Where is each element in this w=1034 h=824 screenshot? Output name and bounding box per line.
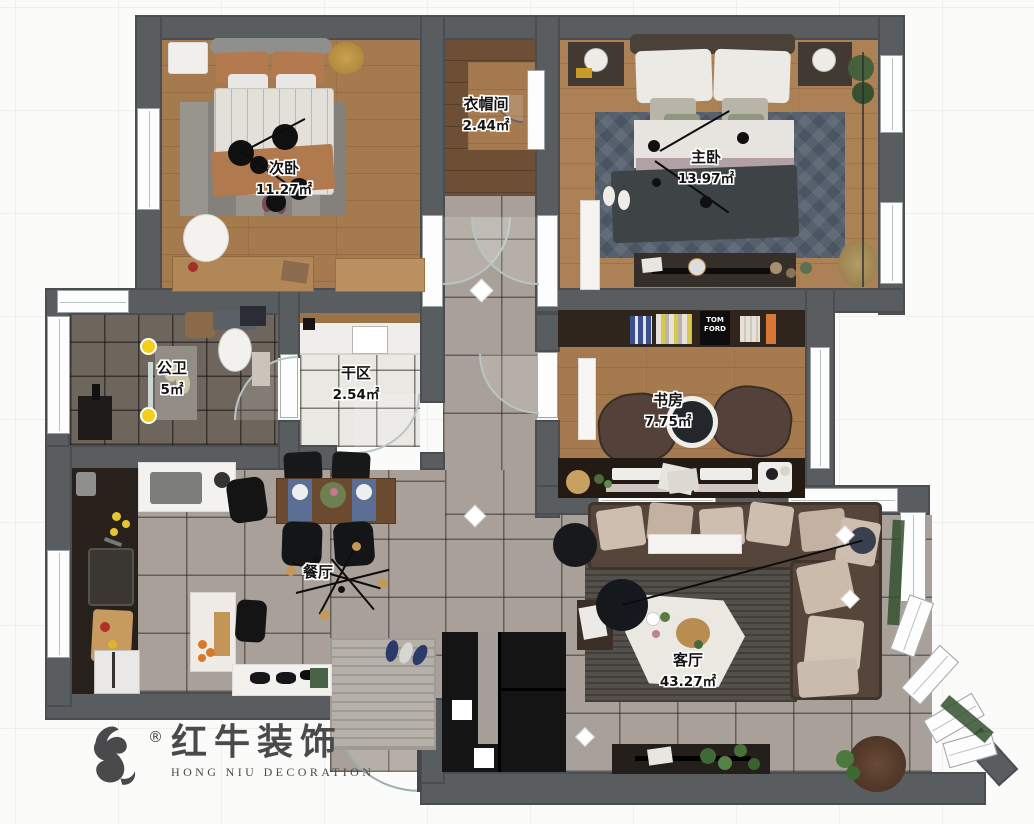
study-door-panel	[578, 358, 596, 440]
books-blue	[630, 316, 652, 344]
cabinet-divider-v	[498, 632, 501, 772]
bull-icon	[88, 722, 142, 792]
dry-wood-band	[300, 313, 420, 323]
room-area: 11.27㎡	[229, 180, 339, 202]
desk-plant-1	[594, 474, 604, 484]
brand-logo: ® 红牛装饰 HONG NIU DECORATION	[88, 722, 374, 792]
bench-shoe-1	[250, 672, 270, 684]
plant-master-1	[848, 55, 874, 81]
dresser-secondary	[335, 258, 425, 292]
plate-1	[292, 484, 308, 500]
table-plant-1	[660, 612, 670, 622]
island-board	[214, 612, 230, 656]
lemon-2	[122, 520, 130, 528]
deco-ball-2	[786, 268, 796, 278]
cabinet-gap-tile	[478, 632, 498, 744]
label-living: 客厅 43.27㎡	[633, 648, 743, 694]
table-flower-pink	[652, 630, 660, 638]
room-area: 2.44㎡	[431, 116, 541, 138]
orange-1	[198, 640, 207, 649]
logo-chinese: 红牛装饰	[171, 722, 374, 763]
book-orange	[766, 314, 776, 344]
lamp-right	[812, 48, 836, 72]
chandelier-knob	[378, 578, 388, 588]
curtain-rail	[862, 52, 864, 287]
room-name: 衣帽间	[431, 92, 541, 116]
chandelier-dot	[338, 586, 345, 593]
book-box-tomford: TOM FORD	[700, 311, 730, 345]
deco-ball-3	[800, 262, 812, 274]
tomato	[100, 622, 110, 632]
spotlight-yellow-1	[140, 338, 157, 355]
cabinet-handle-2	[474, 748, 494, 768]
desk-flower	[188, 262, 198, 272]
sputnik-dot	[700, 196, 712, 208]
desk-board	[281, 260, 310, 283]
room-area: 43.27㎡	[633, 672, 743, 694]
tv-papers	[647, 746, 673, 765]
living-plant-3	[734, 744, 747, 757]
window-master-2	[880, 202, 903, 284]
sofa-pillow	[797, 658, 859, 698]
orange-3	[198, 654, 206, 662]
door-leaf-study	[537, 352, 558, 418]
window-secondary-bedroom	[137, 108, 160, 210]
lemon-1	[112, 512, 121, 521]
sofa-pillow	[745, 501, 794, 547]
room-name: 餐厅	[263, 560, 373, 584]
wall-dry-right-b	[420, 452, 445, 470]
books-mixed	[656, 314, 692, 344]
lemon-3	[110, 528, 118, 536]
wall-study-left-a	[535, 313, 560, 352]
wall-kitchen-bottom	[45, 692, 337, 720]
floor-plan: TOM FORD	[0, 0, 1034, 824]
dried-grass	[838, 240, 878, 288]
room-name: 书房	[613, 388, 723, 412]
window-bathroom-left	[47, 316, 70, 434]
chandelier-knob	[320, 610, 330, 620]
label-secondary-bedroom: 次卧 11.27㎡	[229, 156, 339, 202]
wall-bath-dry-divider-a	[278, 288, 300, 358]
dry-soap	[303, 318, 315, 330]
window-bathroom-top	[57, 290, 129, 313]
mirror-strip	[580, 200, 600, 290]
fridge	[94, 650, 140, 694]
label-cloakroom: 衣帽间 2.44㎡	[431, 92, 541, 138]
label-dry-area: 干区 2.54㎡	[301, 361, 411, 407]
stool-black	[235, 599, 268, 643]
sputnik-dot	[737, 132, 749, 144]
door-leaf-secondary-bedroom	[422, 215, 443, 307]
sofa-pillow	[595, 505, 646, 551]
slippers-master-2	[618, 190, 630, 210]
room-area: 7.75㎡	[613, 412, 723, 434]
plate-2	[356, 484, 372, 500]
cabinet-divider-h	[501, 688, 566, 691]
cabinet-papers	[641, 257, 662, 273]
fridge-handle	[112, 652, 115, 688]
shower-column	[92, 384, 100, 400]
room-name: 公卫	[117, 356, 227, 380]
label-master-bedroom: 主卧 13.97㎡	[651, 145, 761, 191]
living-plant-4	[748, 758, 760, 770]
spotlight-yellow-2	[140, 407, 157, 424]
nightstand-white	[168, 42, 208, 74]
bath-fixture	[240, 306, 266, 326]
table-deco-tan	[676, 618, 710, 648]
window-master-1	[880, 55, 903, 133]
label-bathroom: 公卫 5㎡	[117, 356, 227, 402]
label-dining: 餐厅	[263, 560, 373, 584]
sofa-console-white	[648, 534, 742, 554]
bench-plant-box	[310, 668, 328, 688]
stove	[150, 472, 202, 504]
tray-cup	[780, 466, 790, 476]
label-study: 书房 7.75㎡	[613, 388, 723, 434]
shower-pan	[78, 396, 112, 440]
towel	[252, 352, 270, 386]
bench-shoe-2	[276, 672, 296, 684]
bath-stool	[185, 312, 215, 338]
floor-corridor-mouth	[445, 470, 535, 515]
pillow-master-2	[713, 49, 791, 104]
keyboard-1	[612, 468, 664, 480]
desk-globe	[566, 470, 590, 494]
cabinet-handle-1	[452, 700, 472, 720]
desk-papers-2	[667, 468, 700, 494]
living-plant-1	[700, 748, 716, 764]
kitchen-kettle	[76, 472, 96, 496]
room-name: 干区	[301, 361, 411, 385]
desk-chair	[183, 214, 229, 262]
keyboard-2	[700, 468, 752, 480]
slippers-master-1	[603, 186, 615, 206]
books-white	[740, 316, 760, 342]
logo-english: HONG NIU DECORATION	[171, 765, 374, 780]
room-area: 13.97㎡	[651, 169, 761, 191]
monitor-2	[694, 484, 758, 492]
room-name: 主卧	[651, 145, 761, 169]
nightstand-deco	[576, 68, 592, 78]
tv-master	[652, 268, 770, 274]
cabinet-plate	[688, 258, 706, 276]
living-plant-2	[718, 756, 732, 770]
desk-plant-2	[604, 480, 612, 488]
chair-black-kitchen	[225, 476, 269, 525]
dried-plant	[328, 42, 364, 74]
room-name: 客厅	[633, 648, 743, 672]
chandelier-knob	[352, 542, 361, 551]
door-leaf-master	[537, 215, 558, 307]
kitchen-sink	[88, 548, 134, 606]
orange-2	[206, 648, 215, 657]
pillow-master-1	[635, 49, 713, 104]
room-area: 2.54㎡	[301, 385, 411, 407]
room-name: 次卧	[229, 156, 339, 180]
window-kitchen-left	[47, 550, 70, 658]
tray-pot	[766, 468, 778, 480]
dry-sink	[352, 326, 388, 354]
table-cup	[646, 612, 660, 626]
window-study-right	[810, 347, 830, 469]
registered-mark: ®	[148, 728, 163, 746]
deco-ball-1	[770, 262, 782, 274]
ottoman	[848, 736, 906, 792]
lemon-4	[108, 640, 117, 649]
flower-pink	[330, 488, 338, 496]
ottoman-leaf-2	[846, 766, 860, 780]
room-area: 5㎡	[117, 380, 227, 402]
floor-lamp-black	[553, 523, 597, 567]
